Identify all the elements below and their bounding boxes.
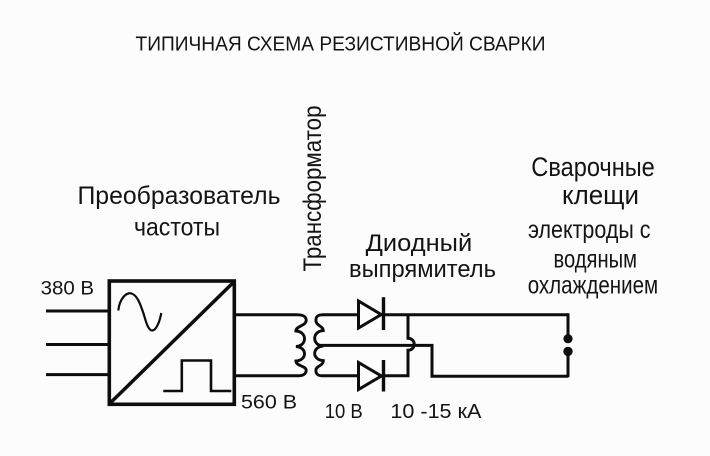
svg-text:охлаждением: охлаждением	[528, 272, 659, 300]
svg-text:клещи: клещи	[562, 180, 639, 210]
svg-text:ТИПИЧНАЯ СХЕМА РЕЗИСТИВНОЙ СВА: ТИПИЧНАЯ СХЕМА РЕЗИСТИВНОЙ СВАРКИ	[136, 32, 546, 56]
svg-text:водяным: водяным	[554, 245, 638, 273]
svg-text:Диодный: Диодный	[366, 230, 473, 257]
svg-text:Трансформатор: Трансформатор	[299, 106, 327, 272]
svg-text:380 В: 380 В	[41, 279, 94, 300]
svg-text:Преобразователь: Преобразователь	[78, 182, 281, 210]
svg-text:частоты: частоты	[134, 214, 220, 242]
svg-text:Сварочные: Сварочные	[531, 152, 655, 182]
svg-text:выпрямитель: выпрямитель	[349, 256, 496, 283]
svg-text:10 -15 кА: 10 -15 кА	[390, 400, 481, 423]
svg-text:10 В: 10 В	[325, 400, 363, 423]
svg-text:560 В: 560 В	[241, 393, 297, 414]
svg-text:электроды с: электроды с	[528, 216, 651, 244]
